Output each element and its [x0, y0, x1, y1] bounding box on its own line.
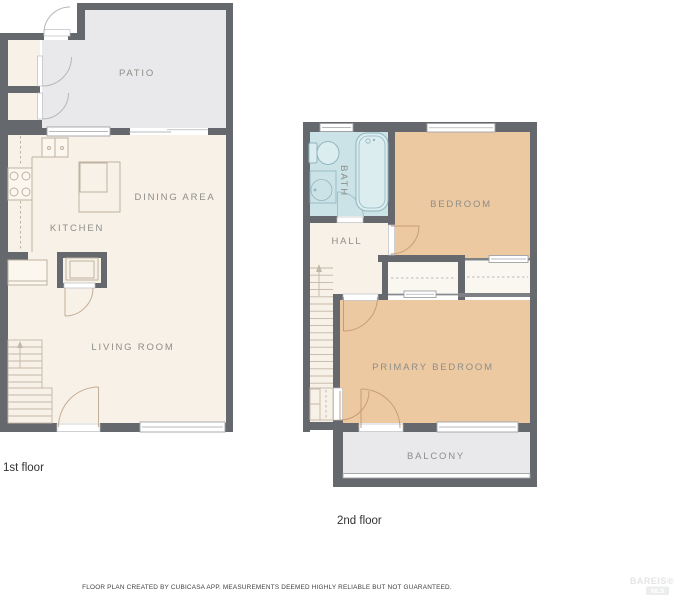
bareis-mls-watermark: BAREIS® MLS — [630, 576, 674, 595]
room-bedroom — [395, 132, 530, 258]
first-floor-plan: PATIO KITCHEN DINING AREA LIVING ROOM 1s… — [0, 3, 233, 474]
patio-closet-2 — [8, 93, 40, 120]
balcony-railing — [343, 474, 530, 479]
room-label-bath: BATH — [338, 165, 349, 197]
room-label-living-room: LIVING ROOM — [91, 342, 174, 353]
patio-closet-1-door — [38, 56, 43, 86]
room-patio — [85, 10, 226, 128]
room-label-hall: HALL — [332, 236, 363, 247]
disclaimer-text: FLOOR PLAN CREATED BY CUBICASA APP. MEAS… — [82, 584, 452, 591]
bathtub — [356, 133, 388, 211]
patio-gate-door — [44, 30, 70, 37]
toilet — [309, 143, 317, 163]
storage-closet-door — [64, 283, 95, 288]
understair-closet-door — [334, 388, 343, 420]
floor-plan-page: PATIO KITCHEN DINING AREA LIVING ROOM 1s… — [0, 0, 679, 600]
watermark-sub: MLS — [651, 588, 665, 595]
patio-closet-2-door — [38, 93, 43, 119]
floor-plan-canvas: PATIO KITCHEN DINING AREA LIVING ROOM 1s… — [0, 0, 679, 600]
room-label-bedroom: BEDROOM — [430, 199, 492, 210]
entry-door — [57, 424, 100, 432]
room-label-kitchen: KITCHEN — [50, 223, 104, 234]
bedroom-closet-back — [458, 293, 530, 297]
watermark-brand: BAREIS® — [630, 576, 674, 586]
room-label-dining-area: DINING AREA — [134, 192, 215, 203]
primary-bedroom-door — [343, 294, 378, 301]
room-hall — [310, 223, 388, 294]
bedroom-door — [389, 225, 395, 255]
room-label-patio: PATIO — [119, 68, 155, 79]
room-label-primary-bedroom: PRIMARY BEDROOM — [372, 362, 494, 373]
second-floor-caption: 2nd floor — [337, 515, 382, 527]
balcony-door — [359, 424, 403, 432]
second-floor-plan: BATH BEDROOM HALL PRIMARY BEDROOM BALCON… — [303, 122, 537, 527]
room-label-balcony: BALCONY — [407, 451, 465, 462]
bath-door — [337, 217, 363, 223]
patio-closet-1 — [8, 40, 40, 86]
first-floor-caption: 1st floor — [3, 462, 44, 474]
room-patio-left — [42, 40, 85, 128]
stairwell — [310, 294, 333, 422]
